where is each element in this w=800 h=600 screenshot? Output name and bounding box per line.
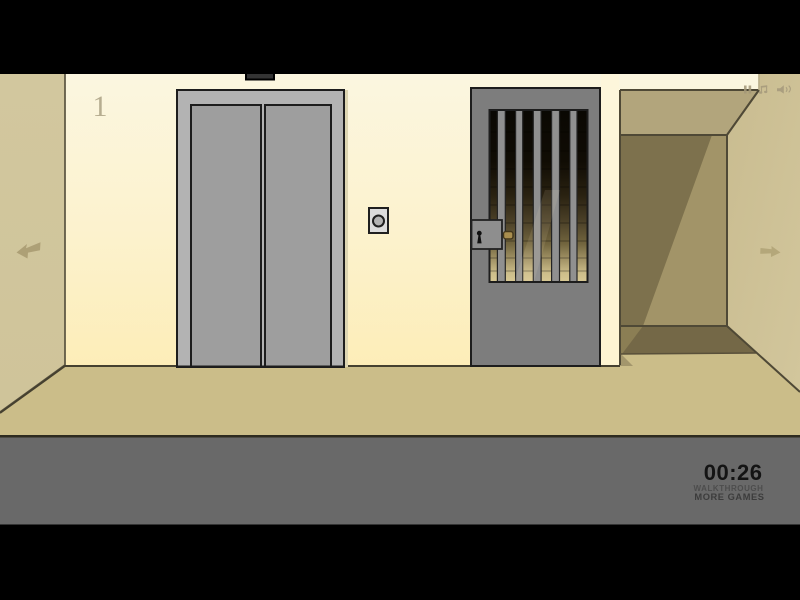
- svg-text:00:26: 00:26: [704, 460, 763, 485]
- svg-text:1: 1: [93, 90, 108, 123]
- svg-text:MORE GAMES: MORE GAMES: [694, 492, 764, 502]
